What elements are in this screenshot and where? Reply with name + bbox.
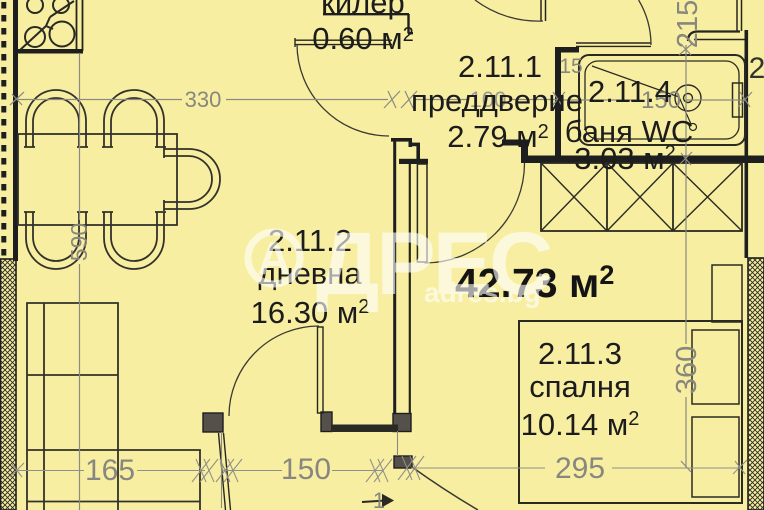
svg-text:2: 2: [749, 52, 764, 85]
svg-text:15: 15: [559, 55, 582, 78]
svg-text:3.03 м2: 3.03 м2: [574, 141, 675, 176]
svg-text:330: 330: [185, 87, 222, 112]
svg-text:adres.bg: adres.bg: [424, 277, 541, 308]
svg-text:10.14 м2: 10.14 м2: [521, 407, 640, 442]
svg-text:А: А: [257, 232, 290, 284]
svg-text:2.79 м2: 2.79 м2: [447, 119, 548, 154]
svg-text:килер: килер: [321, 0, 404, 20]
svg-text:0.60 м2: 0.60 м2: [312, 21, 413, 56]
svg-text:2.11.3: 2.11.3: [538, 336, 622, 371]
svg-text:1: 1: [373, 488, 385, 510]
svg-text:150: 150: [281, 453, 331, 486]
svg-text:295: 295: [555, 452, 605, 485]
svg-text:преддверие: преддверие: [411, 83, 583, 118]
svg-text:спалня: спалня: [529, 369, 631, 404]
svg-text:165: 165: [85, 454, 135, 487]
svg-text:2.11.1: 2.11.1: [458, 49, 542, 84]
svg-text:360: 360: [671, 346, 703, 394]
svg-text:590: 590: [66, 223, 92, 261]
svg-text:2.11.4: 2.11.4: [588, 74, 672, 109]
svg-text:215: 215: [672, 0, 704, 48]
